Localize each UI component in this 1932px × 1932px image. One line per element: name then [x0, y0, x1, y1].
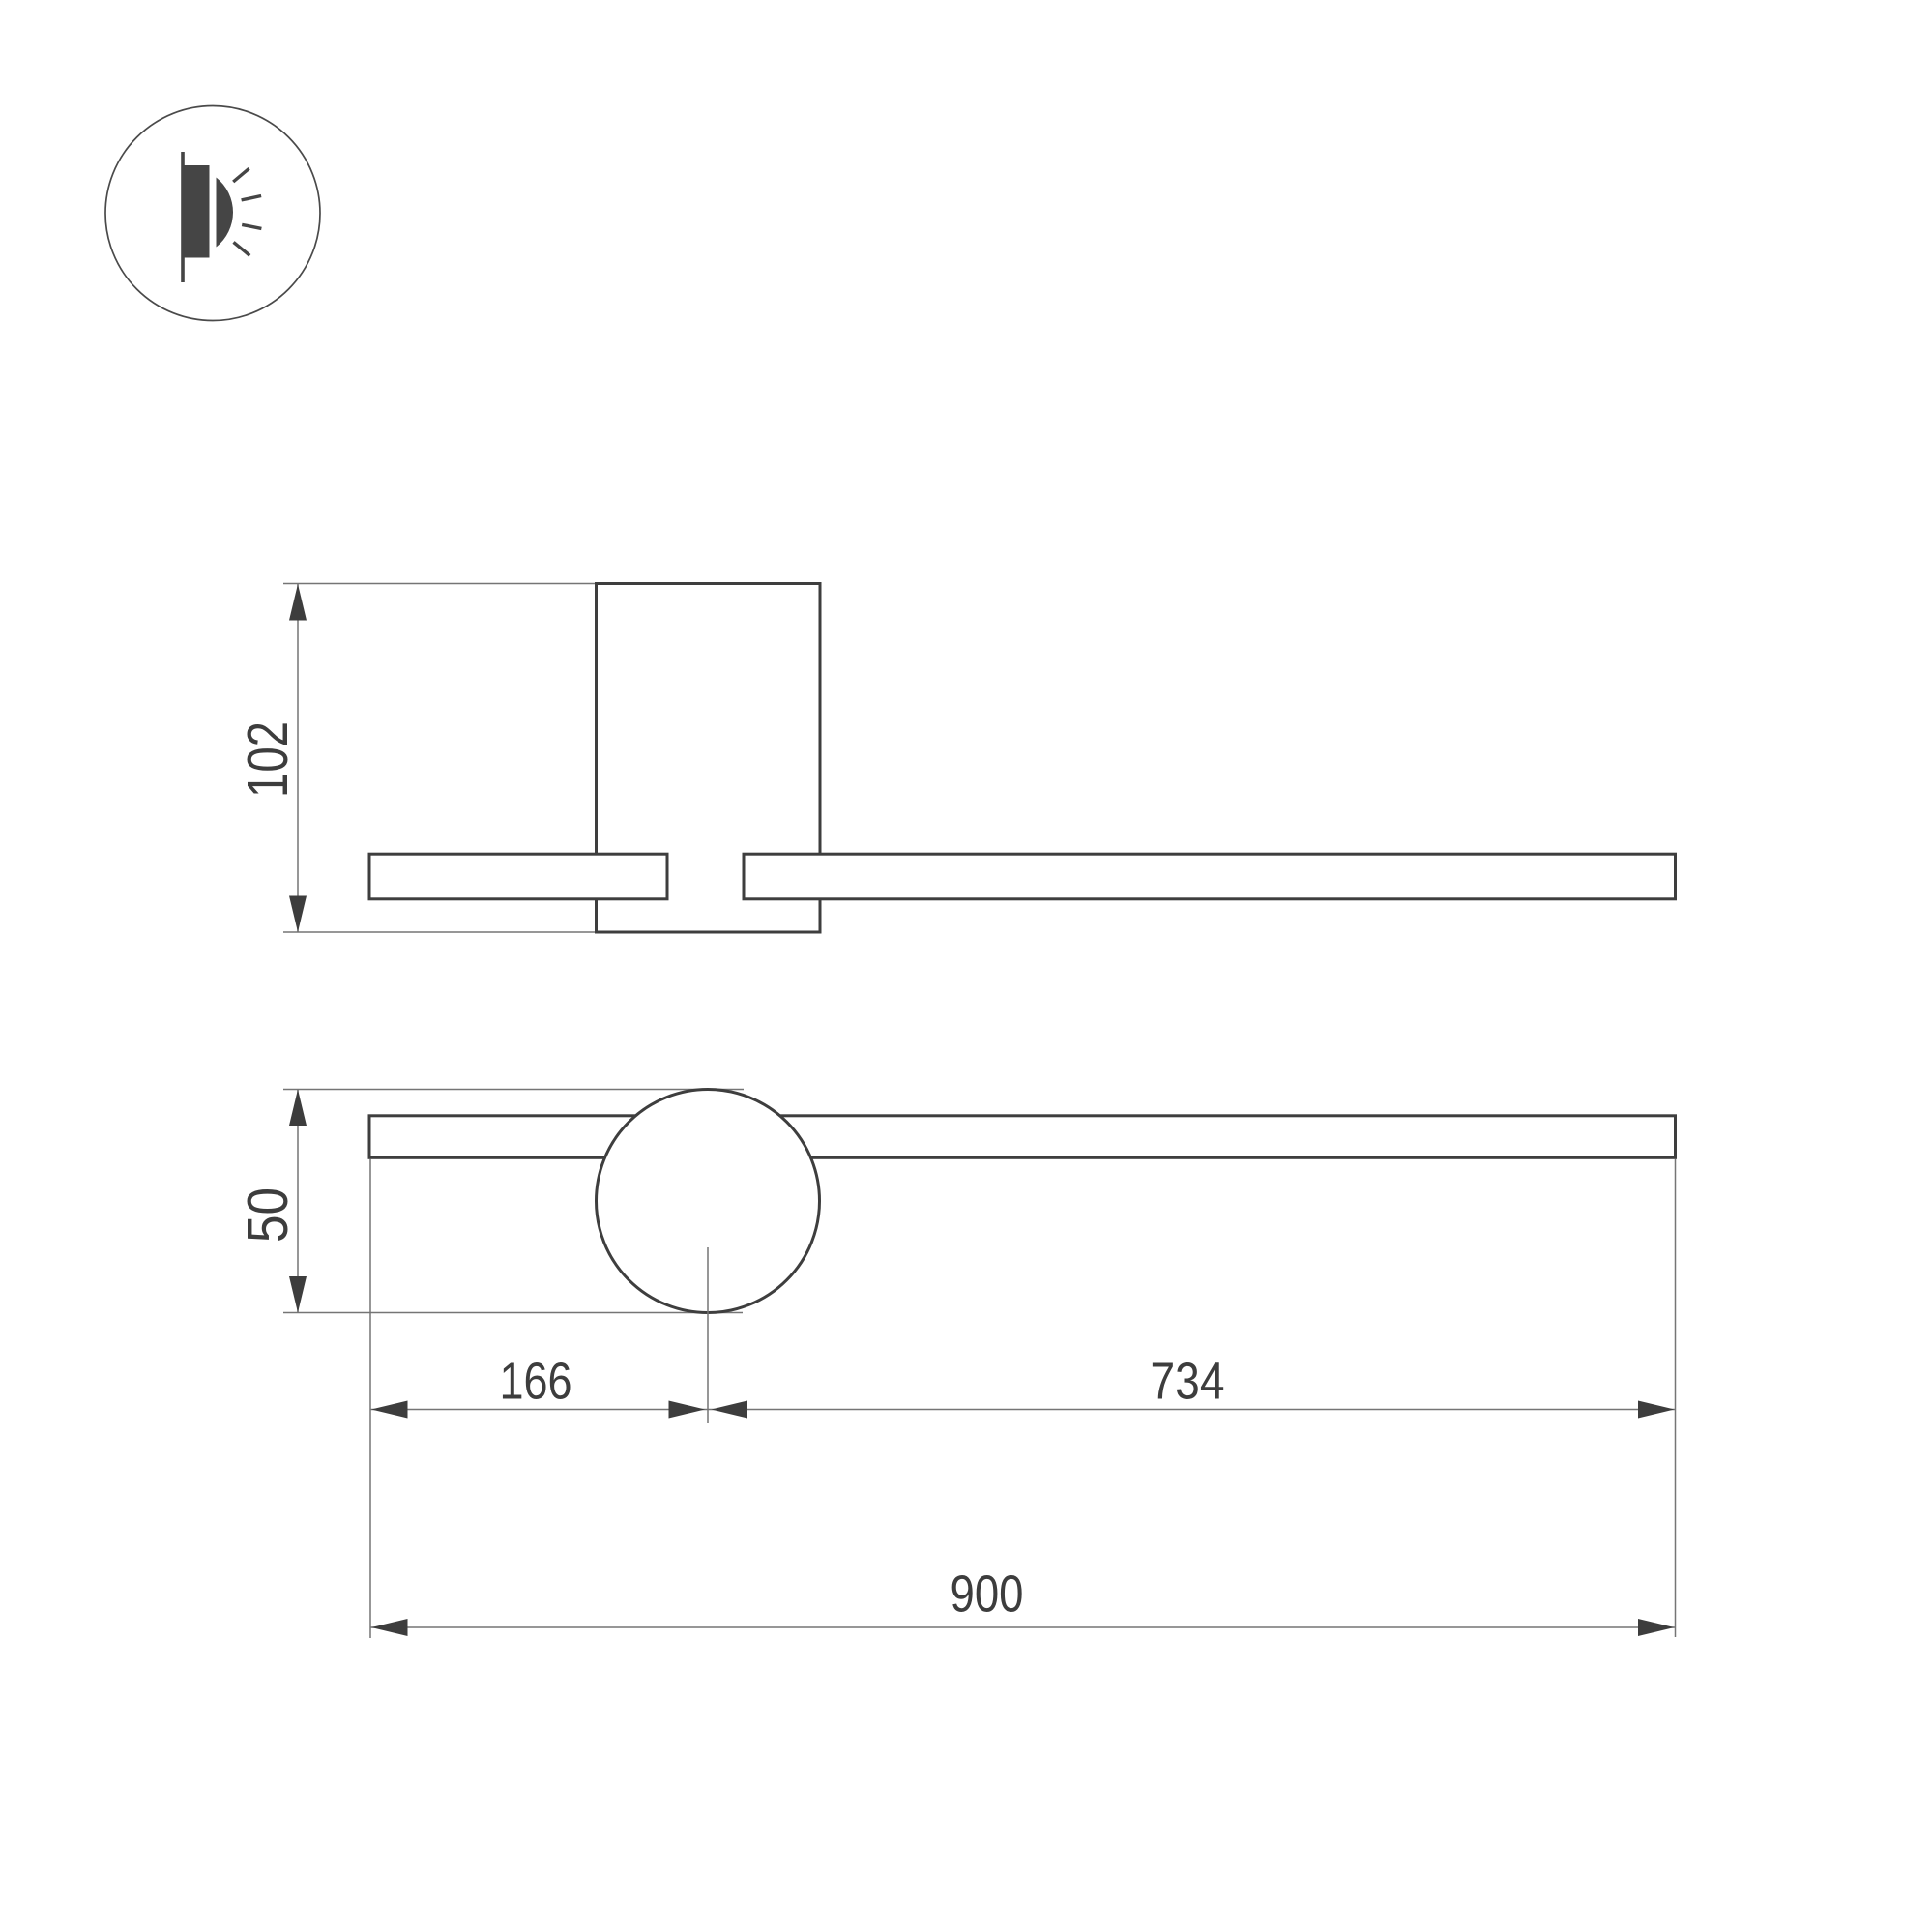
- svg-text:50: 50: [236, 1187, 300, 1243]
- svg-text:900: 900: [951, 1566, 1024, 1624]
- svg-text:102: 102: [236, 721, 300, 798]
- svg-text:166: 166: [500, 1353, 572, 1411]
- svg-text:734: 734: [1151, 1353, 1225, 1411]
